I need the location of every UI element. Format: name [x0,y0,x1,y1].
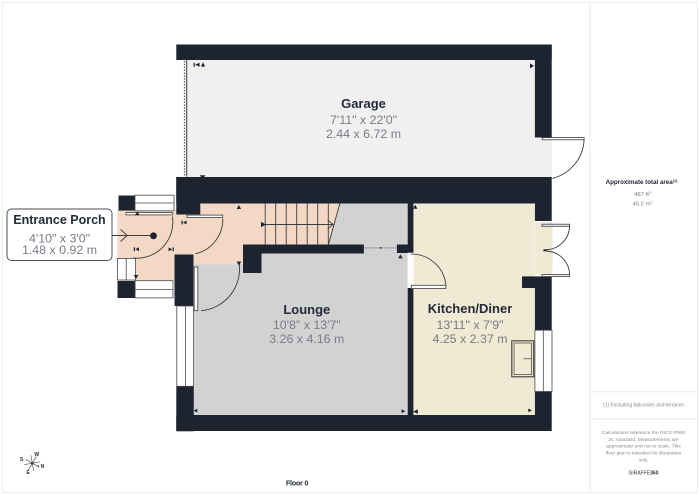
svg-text:13'11" x 7'9": 13'11" x 7'9" [436,318,503,332]
svg-text:Calculations reference the RIC: Calculations reference the RICS IPMS [602,430,686,436]
svg-text:3.26 x 4.16 m: 3.26 x 4.16 m [269,332,344,346]
svg-text:only.: only. [639,458,649,464]
svg-text:7'11" x 22'0": 7'11" x 22'0" [330,113,397,127]
svg-text:N: N [41,464,45,470]
svg-text:487 ft2: 487 ft2 [634,191,651,198]
svg-text:2.44 x 6.72 m: 2.44 x 6.72 m [326,127,401,141]
svg-text:Lounge: Lounge [283,302,330,317]
svg-text:floor plan is intended for ill: floor plan is intended for illustration [606,451,682,457]
svg-text:45.2 m2: 45.2 m2 [632,200,652,207]
svg-text:(1) Excluding balconies and te: (1) Excluding balconies and terraces [603,403,684,409]
svg-text:4.25 x 2.37 m: 4.25 x 2.37 m [432,332,507,346]
svg-text:W: W [34,452,39,458]
svg-text:3C standard. Measurements are: 3C standard. Measurements are [608,437,678,443]
svg-text:GIRAFFE360: GIRAFFE360 [628,471,658,477]
svg-text:approximate and not to scale.: approximate and not to scale. This [606,444,681,450]
svg-text:Entrance Porch: Entrance Porch [13,213,105,227]
svg-text:Garage: Garage [341,96,386,111]
svg-text:10'8" x 13'7": 10'8" x 13'7" [273,318,341,332]
svg-text:1.48 x 0.92 m: 1.48 x 0.92 m [22,243,97,257]
svg-text:Kitchen/Diner: Kitchen/Diner [428,301,513,316]
svg-text:Approximate total area(1): Approximate total area(1) [606,178,678,186]
svg-text:Floor 0: Floor 0 [286,479,308,488]
